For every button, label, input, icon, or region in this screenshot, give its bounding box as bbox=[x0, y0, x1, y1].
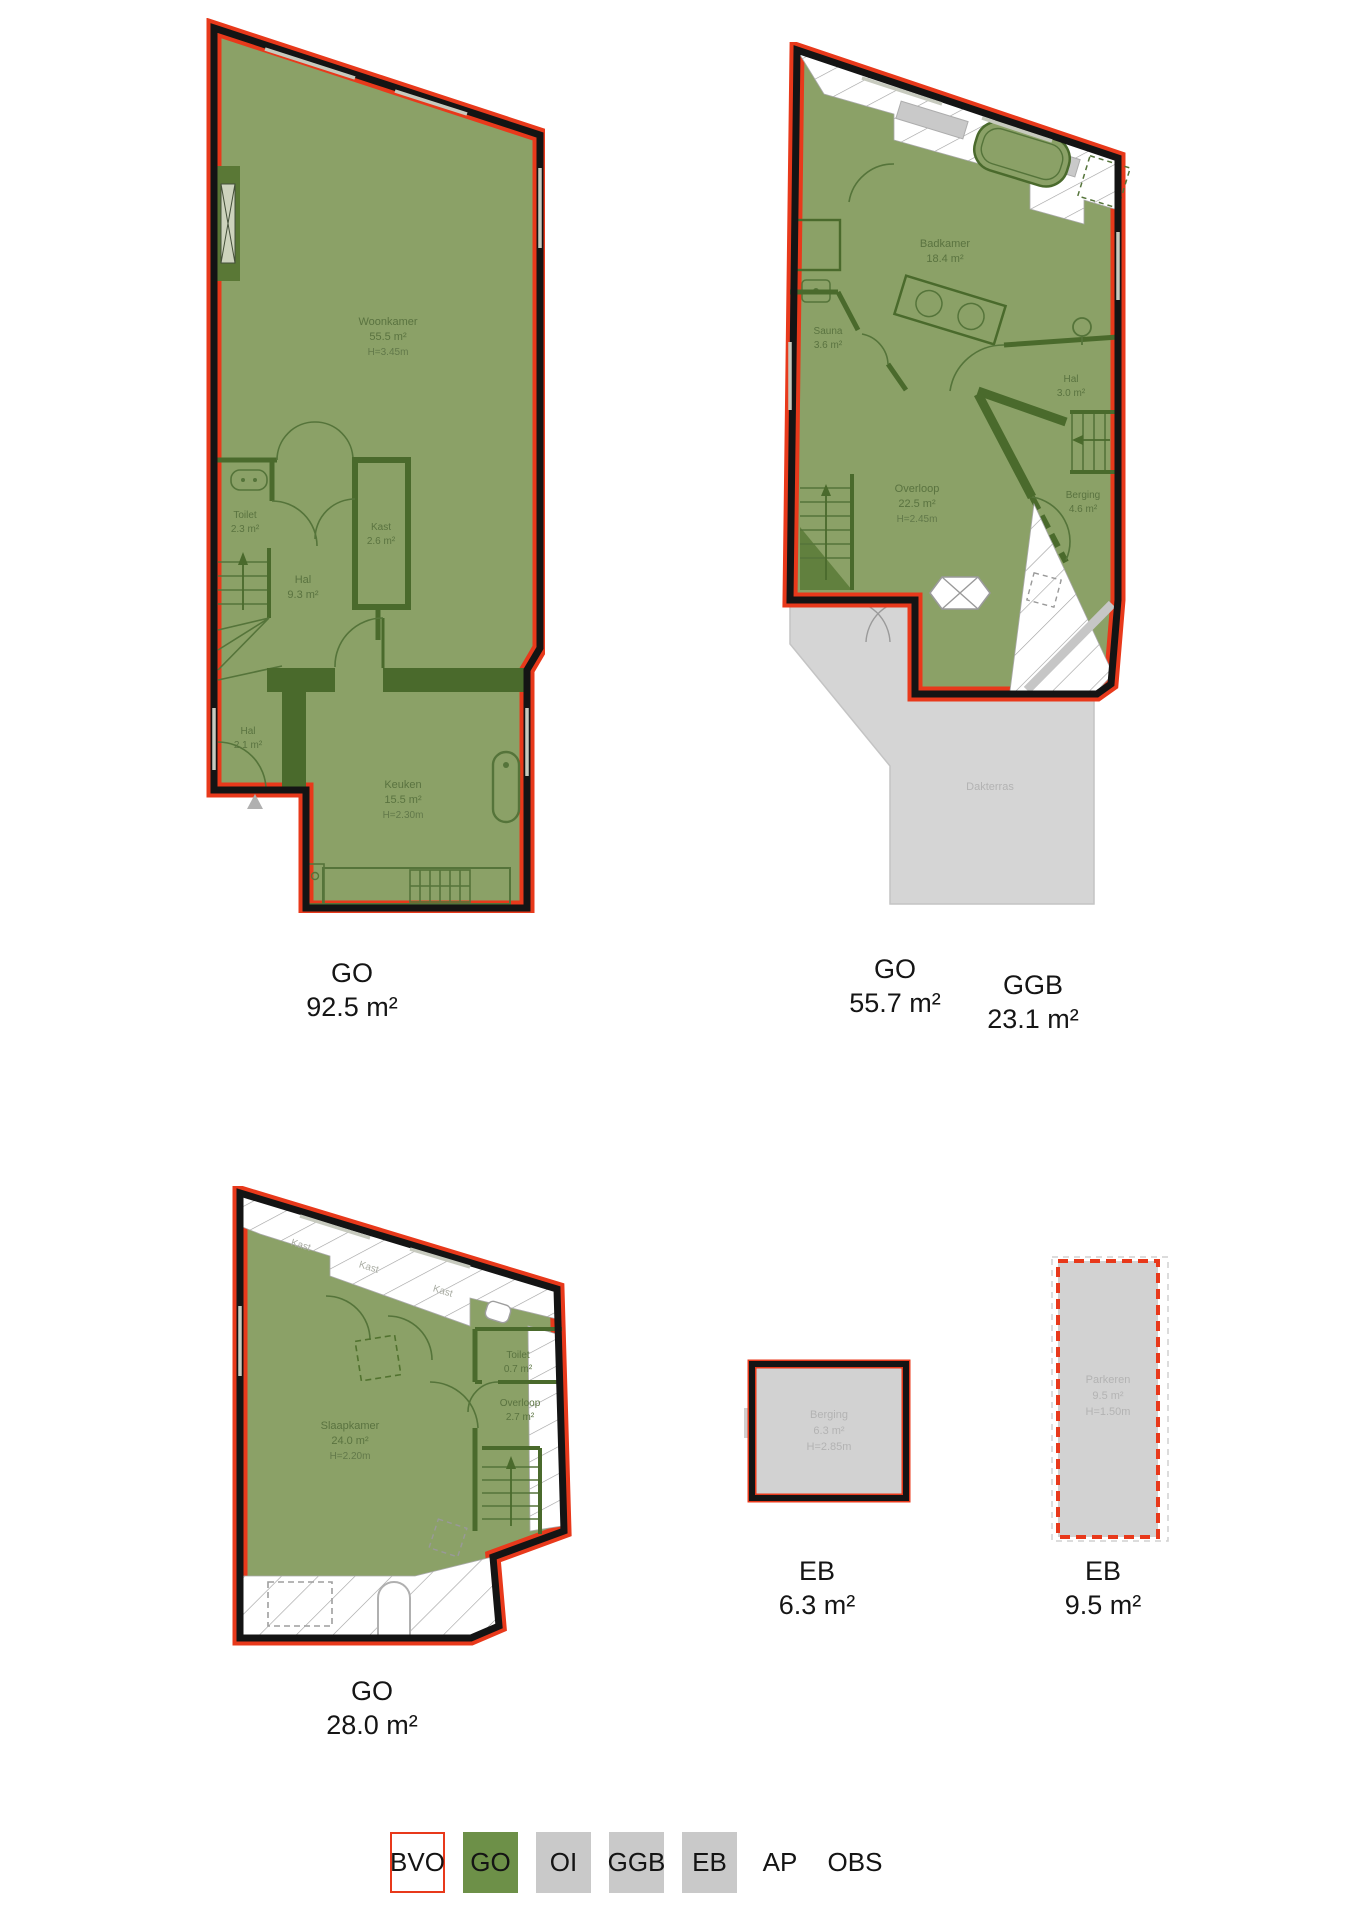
legend-label: OI bbox=[550, 1847, 577, 1878]
legend-item-obs: OBS bbox=[815, 1832, 895, 1893]
svg-text:H=2.30m: H=2.30m bbox=[383, 810, 424, 821]
svg-text:H=2.45m: H=2.45m bbox=[897, 514, 938, 525]
room-label-overloop: Overloop 22.5 m² H=2.45m bbox=[895, 483, 940, 525]
radiator bbox=[216, 166, 240, 281]
svg-text:Badkamer: Badkamer bbox=[920, 238, 970, 250]
arch-opening bbox=[378, 1582, 410, 1636]
floorplan-storage: Berging 6.3 m² H=2.85m bbox=[742, 1356, 914, 1506]
svg-text:15.5 m²: 15.5 m² bbox=[384, 794, 422, 806]
svg-text:Hal: Hal bbox=[295, 574, 312, 586]
svg-text:Berging: Berging bbox=[1066, 490, 1100, 501]
svg-text:Sauna: Sauna bbox=[814, 326, 843, 337]
legend-item-eb: EB bbox=[682, 1832, 737, 1893]
svg-text:H=2.20m: H=2.20m bbox=[330, 1451, 371, 1462]
caption-floor3: GO 28.0 m² bbox=[272, 1674, 472, 1742]
svg-text:H=1.50m: H=1.50m bbox=[1086, 1406, 1131, 1418]
svg-text:2.1 m²: 2.1 m² bbox=[234, 740, 263, 751]
svg-text:Parkeren: Parkeren bbox=[1086, 1374, 1131, 1386]
svg-text:55.5 m²: 55.5 m² bbox=[369, 331, 407, 343]
svg-text:Overloop: Overloop bbox=[895, 483, 940, 495]
svg-text:H=2.85m: H=2.85m bbox=[807, 1441, 852, 1453]
caption-code: GO bbox=[272, 1674, 472, 1708]
svg-text:2.6 m²: 2.6 m² bbox=[367, 536, 396, 547]
svg-text:22.5 m²: 22.5 m² bbox=[898, 498, 936, 510]
caption-code: GGB bbox=[933, 968, 1133, 1002]
svg-text:Keuken: Keuken bbox=[384, 779, 421, 791]
legend-item-ap: AP bbox=[745, 1832, 815, 1893]
skylight bbox=[930, 577, 990, 609]
legend-item-go: GO bbox=[463, 1832, 518, 1893]
legend-label: GGB bbox=[608, 1847, 666, 1878]
svg-text:Kast: Kast bbox=[371, 522, 391, 533]
floorplan-floor3: Kast Kast Kast bbox=[230, 1186, 575, 1656]
legend-label: EB bbox=[692, 1847, 727, 1878]
svg-text:Hal: Hal bbox=[240, 726, 255, 737]
svg-text:2.7 m²: 2.7 m² bbox=[506, 1412, 535, 1423]
legend-item-ggb: GGB bbox=[609, 1832, 664, 1893]
svg-text:Dakterras: Dakterras bbox=[966, 781, 1014, 793]
legend-item-bvo: BVO bbox=[390, 1832, 445, 1893]
svg-text:Overloop: Overloop bbox=[500, 1398, 541, 1409]
caption-storage: EB 6.3 m² bbox=[717, 1554, 917, 1622]
svg-text:18.4 m²: 18.4 m² bbox=[926, 253, 964, 265]
caption-parking: EB 9.5 m² bbox=[1003, 1554, 1203, 1622]
legend-label: GO bbox=[470, 1847, 510, 1878]
svg-text:2.3 m²: 2.3 m² bbox=[231, 524, 260, 535]
caption-floor2-ggb: GGB 23.1 m² bbox=[933, 968, 1133, 1036]
caption-code: EB bbox=[717, 1554, 917, 1588]
svg-text:Toilet: Toilet bbox=[233, 510, 257, 521]
caption-floor1: GO 92.5 m² bbox=[252, 956, 452, 1024]
caption-code: EB bbox=[1003, 1554, 1203, 1588]
svg-text:9.3 m²: 9.3 m² bbox=[287, 589, 319, 601]
svg-text:9.5 m²: 9.5 m² bbox=[1092, 1390, 1124, 1402]
room-label-keuken: Keuken 15.5 m² H=2.30m bbox=[383, 779, 424, 821]
floorplan-sheet: Woonkamer 55.5 m² H=3.45m Toilet 2.3 m² … bbox=[0, 0, 1358, 1920]
svg-text:Woonkamer: Woonkamer bbox=[358, 316, 417, 328]
svg-text:6.3 m²: 6.3 m² bbox=[813, 1425, 845, 1437]
caption-code: GO bbox=[252, 956, 452, 990]
legend-label: AP bbox=[763, 1847, 798, 1878]
svg-text:H=3.45m: H=3.45m bbox=[368, 347, 409, 358]
caption-area: 23.1 m² bbox=[933, 1002, 1133, 1036]
svg-text:Toilet: Toilet bbox=[506, 1350, 530, 1361]
caption-area: 92.5 m² bbox=[252, 990, 452, 1024]
floorplan-floor2: Dakterras bbox=[782, 42, 1132, 957]
svg-text:24.0 m²: 24.0 m² bbox=[331, 1435, 369, 1447]
bvo-outline-floor1 bbox=[214, 28, 540, 908]
floorplan-floor1: Woonkamer 55.5 m² H=3.45m Toilet 2.3 m² … bbox=[205, 18, 545, 913]
legend-label: OBS bbox=[828, 1847, 883, 1878]
caption-area: 28.0 m² bbox=[272, 1708, 472, 1742]
legend-label: BVO bbox=[390, 1847, 445, 1878]
svg-text:3.6 m²: 3.6 m² bbox=[814, 340, 843, 351]
svg-text:Hal: Hal bbox=[1063, 374, 1078, 385]
caption-area: 6.3 m² bbox=[717, 1588, 917, 1622]
svg-text:Berging: Berging bbox=[810, 1409, 848, 1421]
legend-item-oi: OI bbox=[536, 1832, 591, 1893]
floorplan-parking: Parkeren 9.5 m² H=1.50m bbox=[1050, 1255, 1170, 1545]
svg-text:Slaapkamer: Slaapkamer bbox=[321, 1420, 380, 1432]
caption-area: 9.5 m² bbox=[1003, 1588, 1203, 1622]
svg-text:0.7 m²: 0.7 m² bbox=[504, 1364, 533, 1375]
svg-text:4.6 m²: 4.6 m² bbox=[1069, 504, 1098, 515]
svg-text:3.0 m²: 3.0 m² bbox=[1057, 388, 1086, 399]
